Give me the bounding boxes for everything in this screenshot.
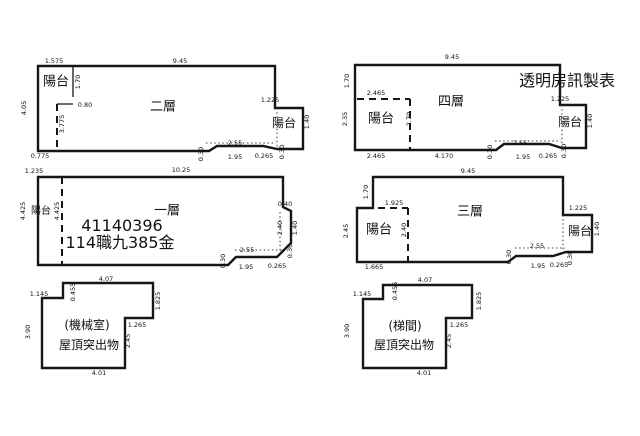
floor4-dim-top: 9.45 (445, 54, 459, 61)
floor1-balcony-label: 陽台 (31, 207, 51, 217)
floor1-dim-195: 1.95 (239, 264, 253, 271)
floor3-dim-dashed: 2.40 (401, 223, 408, 237)
roof2-title: 屋頂突出物 (374, 339, 434, 351)
floor1-case-text: 114職九385金 (65, 235, 174, 251)
floor3-title: 三層 (457, 206, 483, 219)
roof1-title: 屋頂突出物 (59, 339, 119, 351)
floor1-dim-040: 0.40 (278, 201, 292, 208)
floor1-dim-240: 2.40 (277, 221, 284, 235)
floor4-dim-left-bottom: 2.35 (342, 112, 349, 126)
roof1-dim-1265: 1.265 (128, 322, 147, 329)
roof1-dim-1825: 1.825 (155, 292, 162, 311)
floor1-dim-left: 4.425 (20, 202, 27, 221)
roof2-dim-245: 2.45 (446, 334, 453, 348)
floor4-balcony-right-label: 陽台 (558, 116, 582, 128)
floor1-dim-140: 1.40 (292, 221, 299, 235)
floor2-dim-030-left: 0.30 (198, 147, 205, 161)
roof1-dim-245: 2.45 (125, 334, 132, 348)
floor4-dim-030-right: 0.30 (561, 144, 568, 158)
roof2-dim-0455: 0.455 (392, 282, 399, 301)
floor1-case-number: 41140396 (81, 218, 162, 234)
floor2-title: 二層 (150, 101, 176, 114)
floor3-dim-195: 1.95 (531, 263, 545, 270)
floor4-dim-1225: 1.225 (551, 96, 570, 103)
floor2-dim-bottom-left: 0.775 (31, 153, 50, 160)
floor2-dim-left: 4.05 (21, 101, 28, 115)
floor2-dim-3775: 3.775 (59, 115, 66, 134)
floor1-dim-top-left: 1.235 (25, 168, 44, 175)
floor3-balcony-right-label: 陽台 (568, 225, 592, 237)
floor4-balcony-left-label: 陽台 (368, 113, 394, 126)
floor2-dim-0265: 0.265 (255, 153, 274, 160)
floor2-dim-1225: 1.225 (261, 97, 280, 104)
floor1-dim-030-right: 0.30 (287, 244, 294, 258)
floor2-dim-top-left: 1.575 (45, 58, 64, 65)
floor3-dim-top: 9.45 (461, 168, 475, 175)
floor2-dim-top: 9.45 (173, 58, 187, 65)
floor3-dim-140: 1.40 (594, 222, 601, 236)
floor2-dim-255: 2.55 (228, 140, 242, 147)
maker-label: 透明房訊製表 (519, 73, 615, 89)
floor4-dim-270: 2.70 (406, 112, 413, 126)
floor4-dim-2465-bottom: 2.465 (367, 153, 386, 160)
floor3-dim-left-top: 1.70 (363, 185, 370, 199)
floor2-dim-030-right: 0.30 (279, 145, 286, 159)
floor3-balcony-left-label: 陽台 (366, 224, 392, 237)
floor3-dim-1225: 1.225 (569, 205, 588, 212)
roof1-dim-bottom: 4.01 (92, 370, 106, 377)
roof1-room-label: (機械室) (64, 319, 109, 331)
floor1-dim-030-left: 0.30 (220, 254, 227, 268)
roof1-dim-top: 4.07 (99, 276, 113, 283)
floor4-dim-140: 1.40 (587, 114, 594, 128)
floor2-balcony-left-label: 陽台 (43, 76, 69, 89)
floor1-dim-dashed: 4.425 (54, 202, 61, 221)
floor1-dim-top: 10.25 (172, 167, 191, 174)
floor2-dim-balcony-height: 1.70 (75, 75, 82, 89)
floor4-title: 四層 (438, 96, 464, 109)
floor4-dim-2465-top: 2.465 (367, 90, 386, 97)
floor2-balcony-right-label: 陽台 (272, 117, 296, 129)
floor2-dim-140: 1.40 (304, 115, 311, 129)
roof1-dim-0455: 0.455 (70, 283, 77, 302)
floor4-dim-4170: 4.170 (435, 153, 454, 160)
floor4-dim-030-left: 0.30 (487, 145, 494, 159)
roof2-room-label: (梯間) (388, 320, 421, 332)
roof1-dim-1145: 1.145 (30, 291, 49, 298)
floor3-dim-bottom-left: 1.665 (365, 264, 384, 271)
floor1-dim-255: 2.55 (240, 247, 254, 254)
floor-plan-sheet: 1.5759.454.05陽台1.700.803.7750.775二層1.225… (0, 0, 640, 436)
floor4-dim-left-top: 1.70 (344, 74, 351, 88)
roof1-dim-390: 3.90 (25, 325, 32, 339)
roof2-dim-bottom: 4.01 (417, 370, 431, 377)
roof2-dim-top: 4.07 (418, 277, 432, 284)
floor2-dim-080: 0.80 (78, 102, 92, 109)
floor4-dim-255: 2.55 (513, 140, 527, 147)
floor3-dim-030-left: 0.30 (506, 250, 513, 264)
floor3-outline (357, 177, 592, 262)
roof2-dim-390: 3.90 (344, 324, 351, 338)
floor3-dim-1925: 1.925 (385, 200, 404, 207)
roof2-dim-1825: 1.825 (476, 292, 483, 311)
floor3-dim-255: 2.55 (530, 243, 544, 250)
floor3-dim-left: 2.45 (343, 224, 350, 238)
floor4-dim-0265: 0.265 (539, 153, 558, 160)
roof2-dim-1265: 1.265 (450, 322, 469, 329)
floor1-dim-0265: 0.265 (268, 263, 287, 270)
floor4-dim-195: 1.95 (516, 154, 530, 161)
floor2-dim-195: 1.95 (228, 154, 242, 161)
floor3-dim-030-right: 0.30 (567, 251, 574, 265)
roof2-dim-1145: 1.145 (353, 291, 372, 298)
